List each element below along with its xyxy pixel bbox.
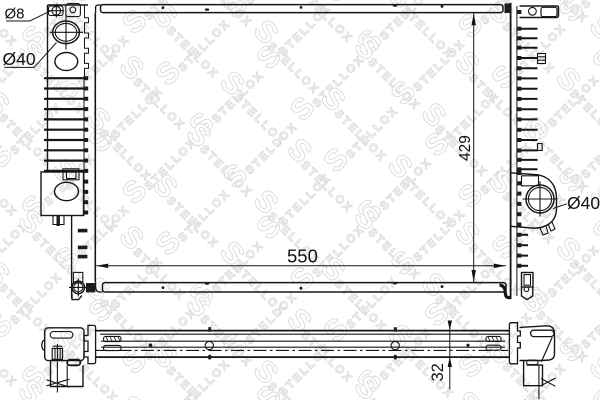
svg-text:429: 429 — [457, 135, 474, 161]
svg-text:Ø40: Ø40 — [3, 49, 36, 69]
svg-text:Ø40: Ø40 — [567, 193, 600, 213]
svg-text:32: 32 — [429, 363, 447, 381]
svg-text:550: 550 — [287, 245, 318, 266]
svg-text:Ø8: Ø8 — [5, 6, 25, 23]
